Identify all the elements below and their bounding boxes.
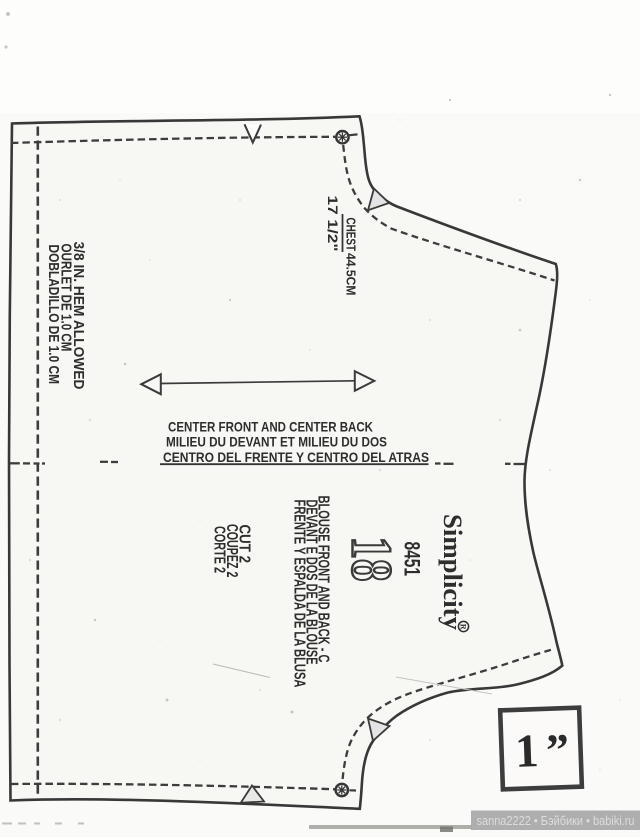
svg-text:Simplicity: Simplicity: [438, 514, 468, 630]
svg-text:FRENTE Y ESPALDA DE LA BLUSA: FRENTE Y ESPALDA DE LA BLUSA: [291, 500, 308, 688]
svg-text:”: ”: [545, 724, 570, 776]
svg-text:17 1/2": 17 1/2": [325, 196, 341, 252]
svg-text:CHEST: CHEST: [344, 218, 359, 252]
svg-text:CENTRO DEL FRENTE Y CENTRO DEL: CENTRO DEL FRENTE Y CENTRO DEL ATRAS: [163, 449, 429, 465]
svg-text:MILIEU DU DEVANT ET MILIEU DU: MILIEU DU DEVANT ET MILIEU DU DOS: [166, 433, 387, 449]
svg-text:1: 1: [514, 725, 539, 778]
svg-text:sanna2222 • Бэйбики • babiki.r: sanna2222 • Бэйбики • babiki.ru: [477, 813, 635, 828]
svg-text:18: 18: [340, 537, 403, 582]
svg-text:R: R: [459, 624, 468, 630]
svg-text:44.5CM: 44.5CM: [344, 253, 359, 296]
svg-text:CENTER FRONT AND CENTER BACK: CENTER FRONT AND CENTER BACK: [168, 419, 373, 435]
svg-text:CORTE 2: CORTE 2: [211, 526, 228, 573]
svg-text:DOBLADILLO DE 1.0 CM: DOBLADILLO DE 1.0 CM: [45, 245, 62, 385]
